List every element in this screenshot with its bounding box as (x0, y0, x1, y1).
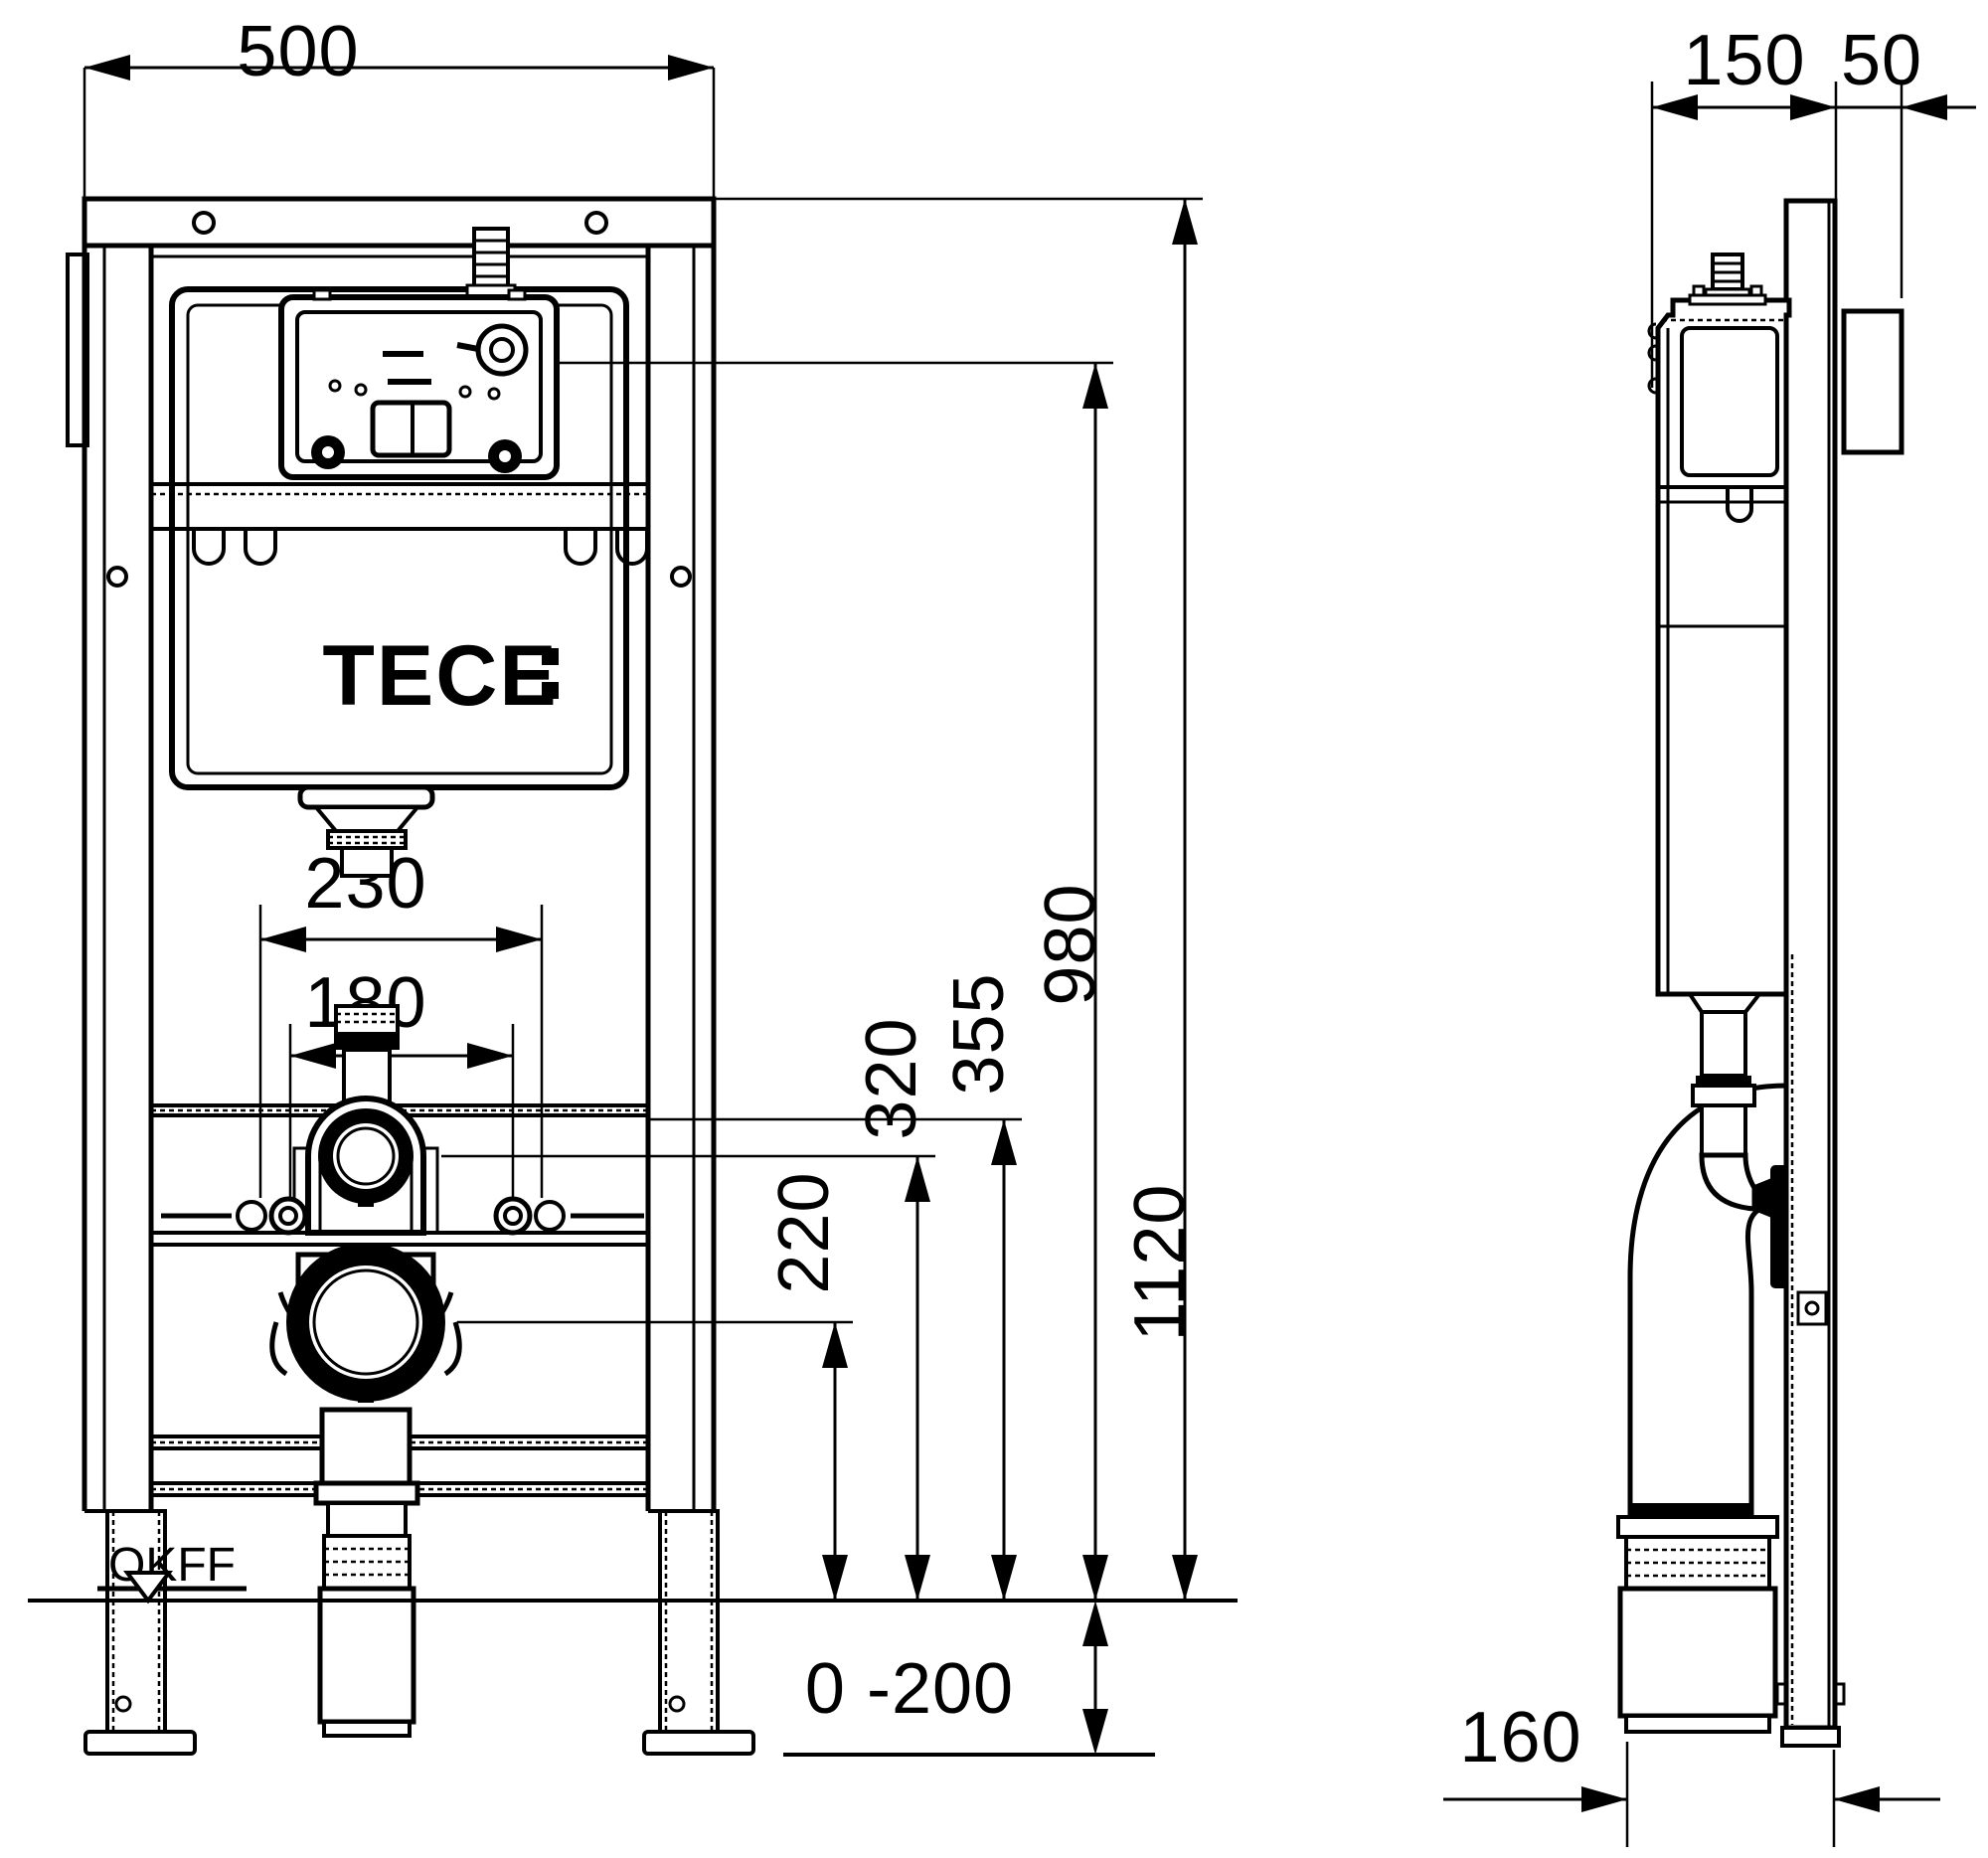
arrow-up-icon (1082, 363, 1108, 409)
dim-service-height: 980 (1031, 363, 1110, 1601)
dim-label-1120: 1120 (1120, 1184, 1200, 1342)
dim-label-355: 355 (939, 972, 1019, 1095)
bolt-hole-icon (271, 1199, 305, 1233)
screw-hole-icon (194, 213, 214, 233)
front-view: TECE (28, 12, 1238, 1755)
dim-label-150: 150 (1683, 21, 1805, 100)
side-view: 150 50 160 (1443, 21, 1976, 1847)
arrow-left-icon (1834, 1786, 1880, 1812)
foot-plate (644, 1732, 753, 1754)
bolt-hole-icon (536, 1202, 564, 1230)
behind-wall-box (1844, 311, 1902, 452)
fixing-block (1770, 1165, 1788, 1288)
logo-colon-dot (542, 682, 559, 699)
dim-label-220: 220 (764, 1171, 844, 1293)
flush-valve-box (281, 229, 557, 477)
arrow-right-icon (668, 55, 714, 81)
arrow-right-icon (467, 1043, 513, 1069)
flush-elbow (294, 1098, 437, 1233)
arrow-up-icon (991, 1119, 1017, 1165)
dim-leg-adjust-range: 0 -200 (783, 1601, 1155, 1755)
arrow-down-icon (905, 1555, 930, 1601)
dim-label-160: 160 (1459, 1698, 1581, 1777)
dim-label-50: 50 (1841, 21, 1922, 100)
cistern-side (1649, 254, 1789, 994)
bolt-icon (108, 568, 126, 586)
arrow-left-icon (260, 927, 306, 952)
arrow-left-icon (290, 1043, 336, 1069)
dim-width: 500 (84, 12, 714, 199)
dim-label-500: 500 (237, 12, 359, 91)
drain-socket-side (1618, 1503, 1777, 1732)
technical-drawing: TECE (0, 0, 1988, 1858)
foot-plate (1782, 1728, 1839, 1746)
arrow-left-icon (84, 55, 130, 81)
dim-rail-height: 355 (939, 972, 1019, 1601)
arrow-up-icon (1082, 1601, 1108, 1646)
arrow-down-icon (991, 1555, 1017, 1601)
arrow-down-icon (1172, 1555, 1198, 1601)
dim-drain-height: 220 (764, 1171, 848, 1601)
arrow-right-icon (1581, 1786, 1627, 1812)
dim-label-980: 980 (1031, 883, 1110, 1005)
floor-label: OKFF (108, 1539, 236, 1592)
arrow-up-icon (905, 1156, 930, 1202)
dim-label-320: 320 (852, 1017, 931, 1139)
brand-logo: TECE (322, 628, 558, 724)
bolt-hole-icon (238, 1202, 265, 1230)
arrow-up-icon (822, 1322, 848, 1368)
dim-overall-height: 1120 (1120, 199, 1200, 1601)
floor-datum: OKFF (28, 1539, 1238, 1601)
drawing-canvas: TECE (0, 0, 1988, 1858)
foot-plate (85, 1732, 195, 1754)
logo-colon-dot (542, 648, 559, 665)
arrow-down-icon (1082, 1709, 1108, 1755)
dim-label-0-200: 0 -200 (805, 1649, 1014, 1729)
dim-flush-elbow-height: 320 (852, 1017, 931, 1601)
arrow-down-icon (822, 1555, 848, 1601)
bolt-hole-icon (496, 1199, 530, 1233)
arrow-up-icon (1172, 199, 1198, 245)
arrow-down-icon (1082, 1555, 1108, 1601)
bolt-icon (672, 568, 690, 586)
screw-hole-icon (586, 213, 606, 233)
arrow-right-icon (496, 927, 542, 952)
drain-socket (320, 1589, 414, 1722)
